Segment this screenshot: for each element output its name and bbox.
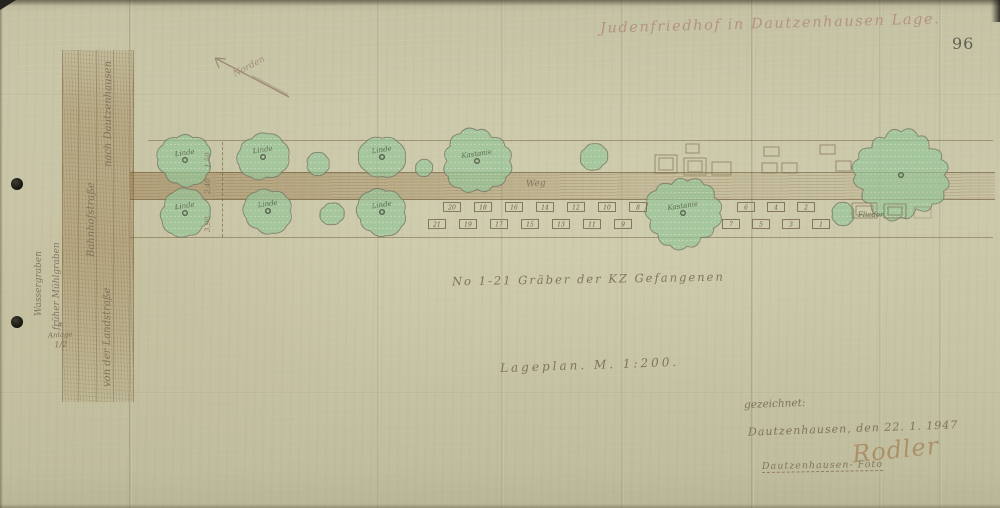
path-label: Weg <box>526 178 546 189</box>
grave-number: 18 <box>479 204 487 211</box>
grave-number: 19 <box>464 221 472 228</box>
tree <box>307 152 329 175</box>
pencil-grave-outline <box>836 161 851 171</box>
roadside-label-ditch: Wassergraben <box>34 251 44 316</box>
grave-number: 6 <box>744 204 748 211</box>
annex-number: 1/2 <box>48 339 73 350</box>
grave-number: 8 <box>636 204 640 211</box>
tree <box>356 188 405 236</box>
grave-number: 11 <box>588 221 596 228</box>
tree <box>157 134 211 187</box>
roadside-label-street: Bahnhofstraße <box>86 182 97 257</box>
pencil-grave-outline-inner <box>688 161 702 172</box>
scanned-plan-sheet: LindeLindeLindeKastanieLindeLindeLindeKa… <box>0 0 1000 508</box>
dimension-label-2: 2,40 <box>204 178 212 194</box>
grave-number: 14 <box>541 204 549 211</box>
grave-number: 20 <box>447 204 456 211</box>
tree <box>645 178 722 250</box>
tree <box>580 144 607 171</box>
roadside-label-origin: von der Landstraße <box>102 287 113 387</box>
tree <box>320 203 345 225</box>
pencil-grave-outline <box>712 162 731 175</box>
grave-number: 4 <box>773 204 778 211</box>
grave-number: 16 <box>510 204 518 211</box>
pencil-grave-outline-inner <box>659 158 673 170</box>
grave-number: 1 <box>819 221 823 228</box>
pencil-grave-outline <box>762 163 777 173</box>
grave-number: 12 <box>572 204 580 211</box>
pencil-grave-outline <box>820 145 835 154</box>
annex-note: # Anlage 1/2 <box>47 319 73 350</box>
pencil-grave-outline <box>782 163 797 173</box>
grave-number: 7 <box>729 221 733 228</box>
pencil-grave-outline <box>686 144 699 153</box>
grave-number: 21 <box>432 221 441 228</box>
tree <box>832 202 854 225</box>
roadside-label-ditch-old: früher Mühlgraben <box>52 242 62 330</box>
grave-number: 9 <box>621 221 625 228</box>
grave-number: 5 <box>759 221 763 228</box>
grave-number: 15 <box>526 221 534 228</box>
grave-number: 10 <box>603 204 611 211</box>
grave-number: 2 <box>803 204 808 211</box>
tree <box>444 128 512 192</box>
drawn-by-label: gezeichnet: <box>744 397 806 411</box>
dimension-label-1: 1,50 <box>204 152 212 168</box>
tree <box>243 189 292 234</box>
annex-word: Anlage <box>48 329 73 340</box>
tree <box>237 133 289 180</box>
stamp-line: Dautzenhausen- Foto <box>762 459 883 473</box>
tree <box>160 188 210 237</box>
grave-number: 13 <box>557 221 565 228</box>
roadside-label-destination: nach Dautzenhausen <box>103 61 114 167</box>
tree <box>415 159 432 176</box>
grave-number: 17 <box>495 221 503 228</box>
pencil-grave-outline <box>764 147 779 156</box>
dimension-label-3: 3,90 <box>204 216 212 232</box>
page-number: 96 <box>952 34 974 53</box>
grave-number: 3 <box>789 221 793 228</box>
tree <box>358 137 405 177</box>
